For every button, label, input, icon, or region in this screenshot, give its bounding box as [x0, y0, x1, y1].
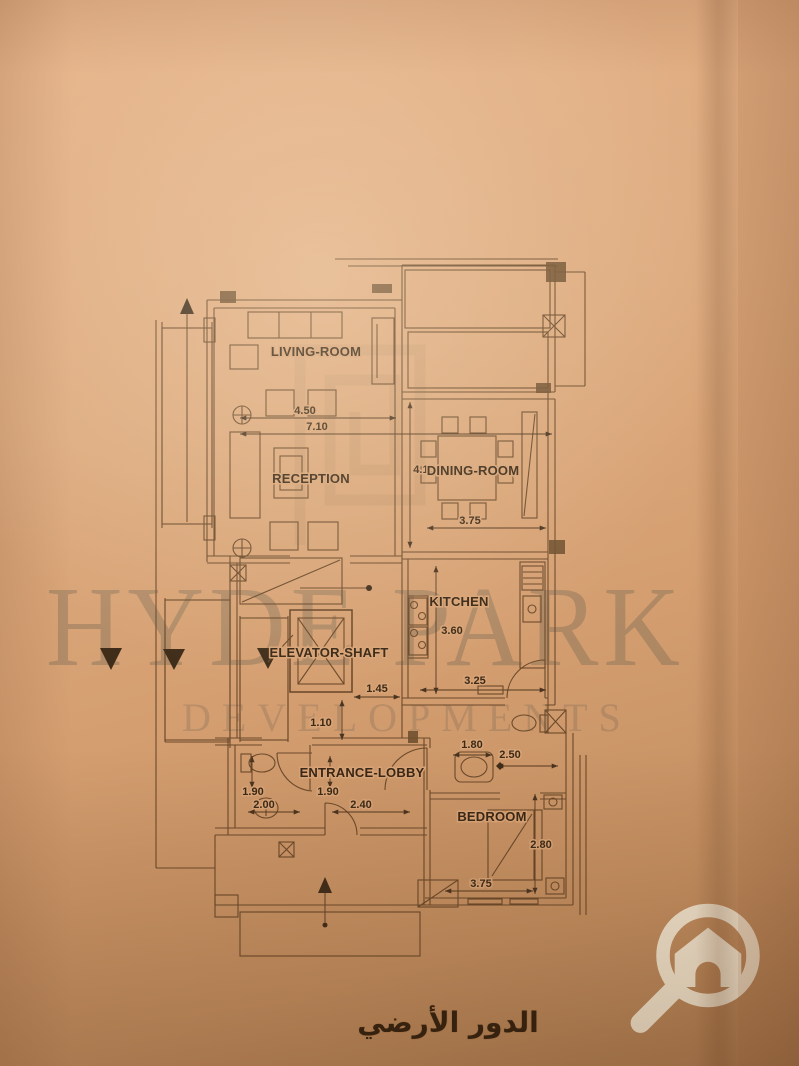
dim-hall-depth: 1.10 [310, 717, 331, 729]
room-label-living: LIVING-ROOM [271, 344, 361, 359]
room-label-bedroom: BEDROOM [457, 809, 526, 824]
terrace-steps [240, 912, 420, 956]
photographed-floorplan-page: HYDE PARK DEVELOPMENTS [0, 0, 799, 1066]
dim-kitchen-width: 3.25 [464, 675, 485, 687]
dim-dining-width: 3.75 [459, 515, 480, 527]
dim-wc-width: 2.00 [253, 799, 274, 811]
room-label-reception: RECEPTION [272, 471, 350, 486]
stairs-up-arrow [180, 298, 194, 522]
dim-overall-width: 7.10 [306, 421, 327, 433]
arabic-floor-caption: الدور الأرضي [318, 1006, 578, 1039]
dim-bath-depth: 2.50 [499, 749, 520, 761]
dim-kitchen-height: 3.60 [441, 625, 462, 637]
dim-hall-width: 1.45 [366, 683, 387, 695]
door-swings [277, 748, 427, 835]
dim-living-width: 4.50 [294, 405, 315, 417]
room-label-lobby: ENTRANCE-LOBBY [300, 765, 425, 780]
dim-lobby-height: 1.90 [317, 786, 338, 798]
room-label-elevator: ELEVATOR-SHAFT [269, 645, 388, 660]
dim-wc-height: 1.90 [242, 786, 263, 798]
magnifier-house-logo [618, 888, 798, 1066]
pergola-slats [405, 270, 550, 388]
room-label-dining: DINING-ROOM [427, 463, 519, 478]
room-label-kitchen: KITCHEN [429, 594, 488, 609]
house-icon [675, 928, 742, 987]
dim-lobby-width: 2.40 [350, 799, 371, 811]
magnifier-handle-icon [641, 992, 673, 1024]
dim-bedroom-height: 2.80 [530, 839, 551, 851]
dim-bedroom-width: 3.75 [470, 878, 491, 890]
dim-bath-width: 1.80 [461, 739, 482, 751]
staircase-mid-left [165, 600, 230, 740]
terrace-up-arrow [318, 877, 332, 928]
